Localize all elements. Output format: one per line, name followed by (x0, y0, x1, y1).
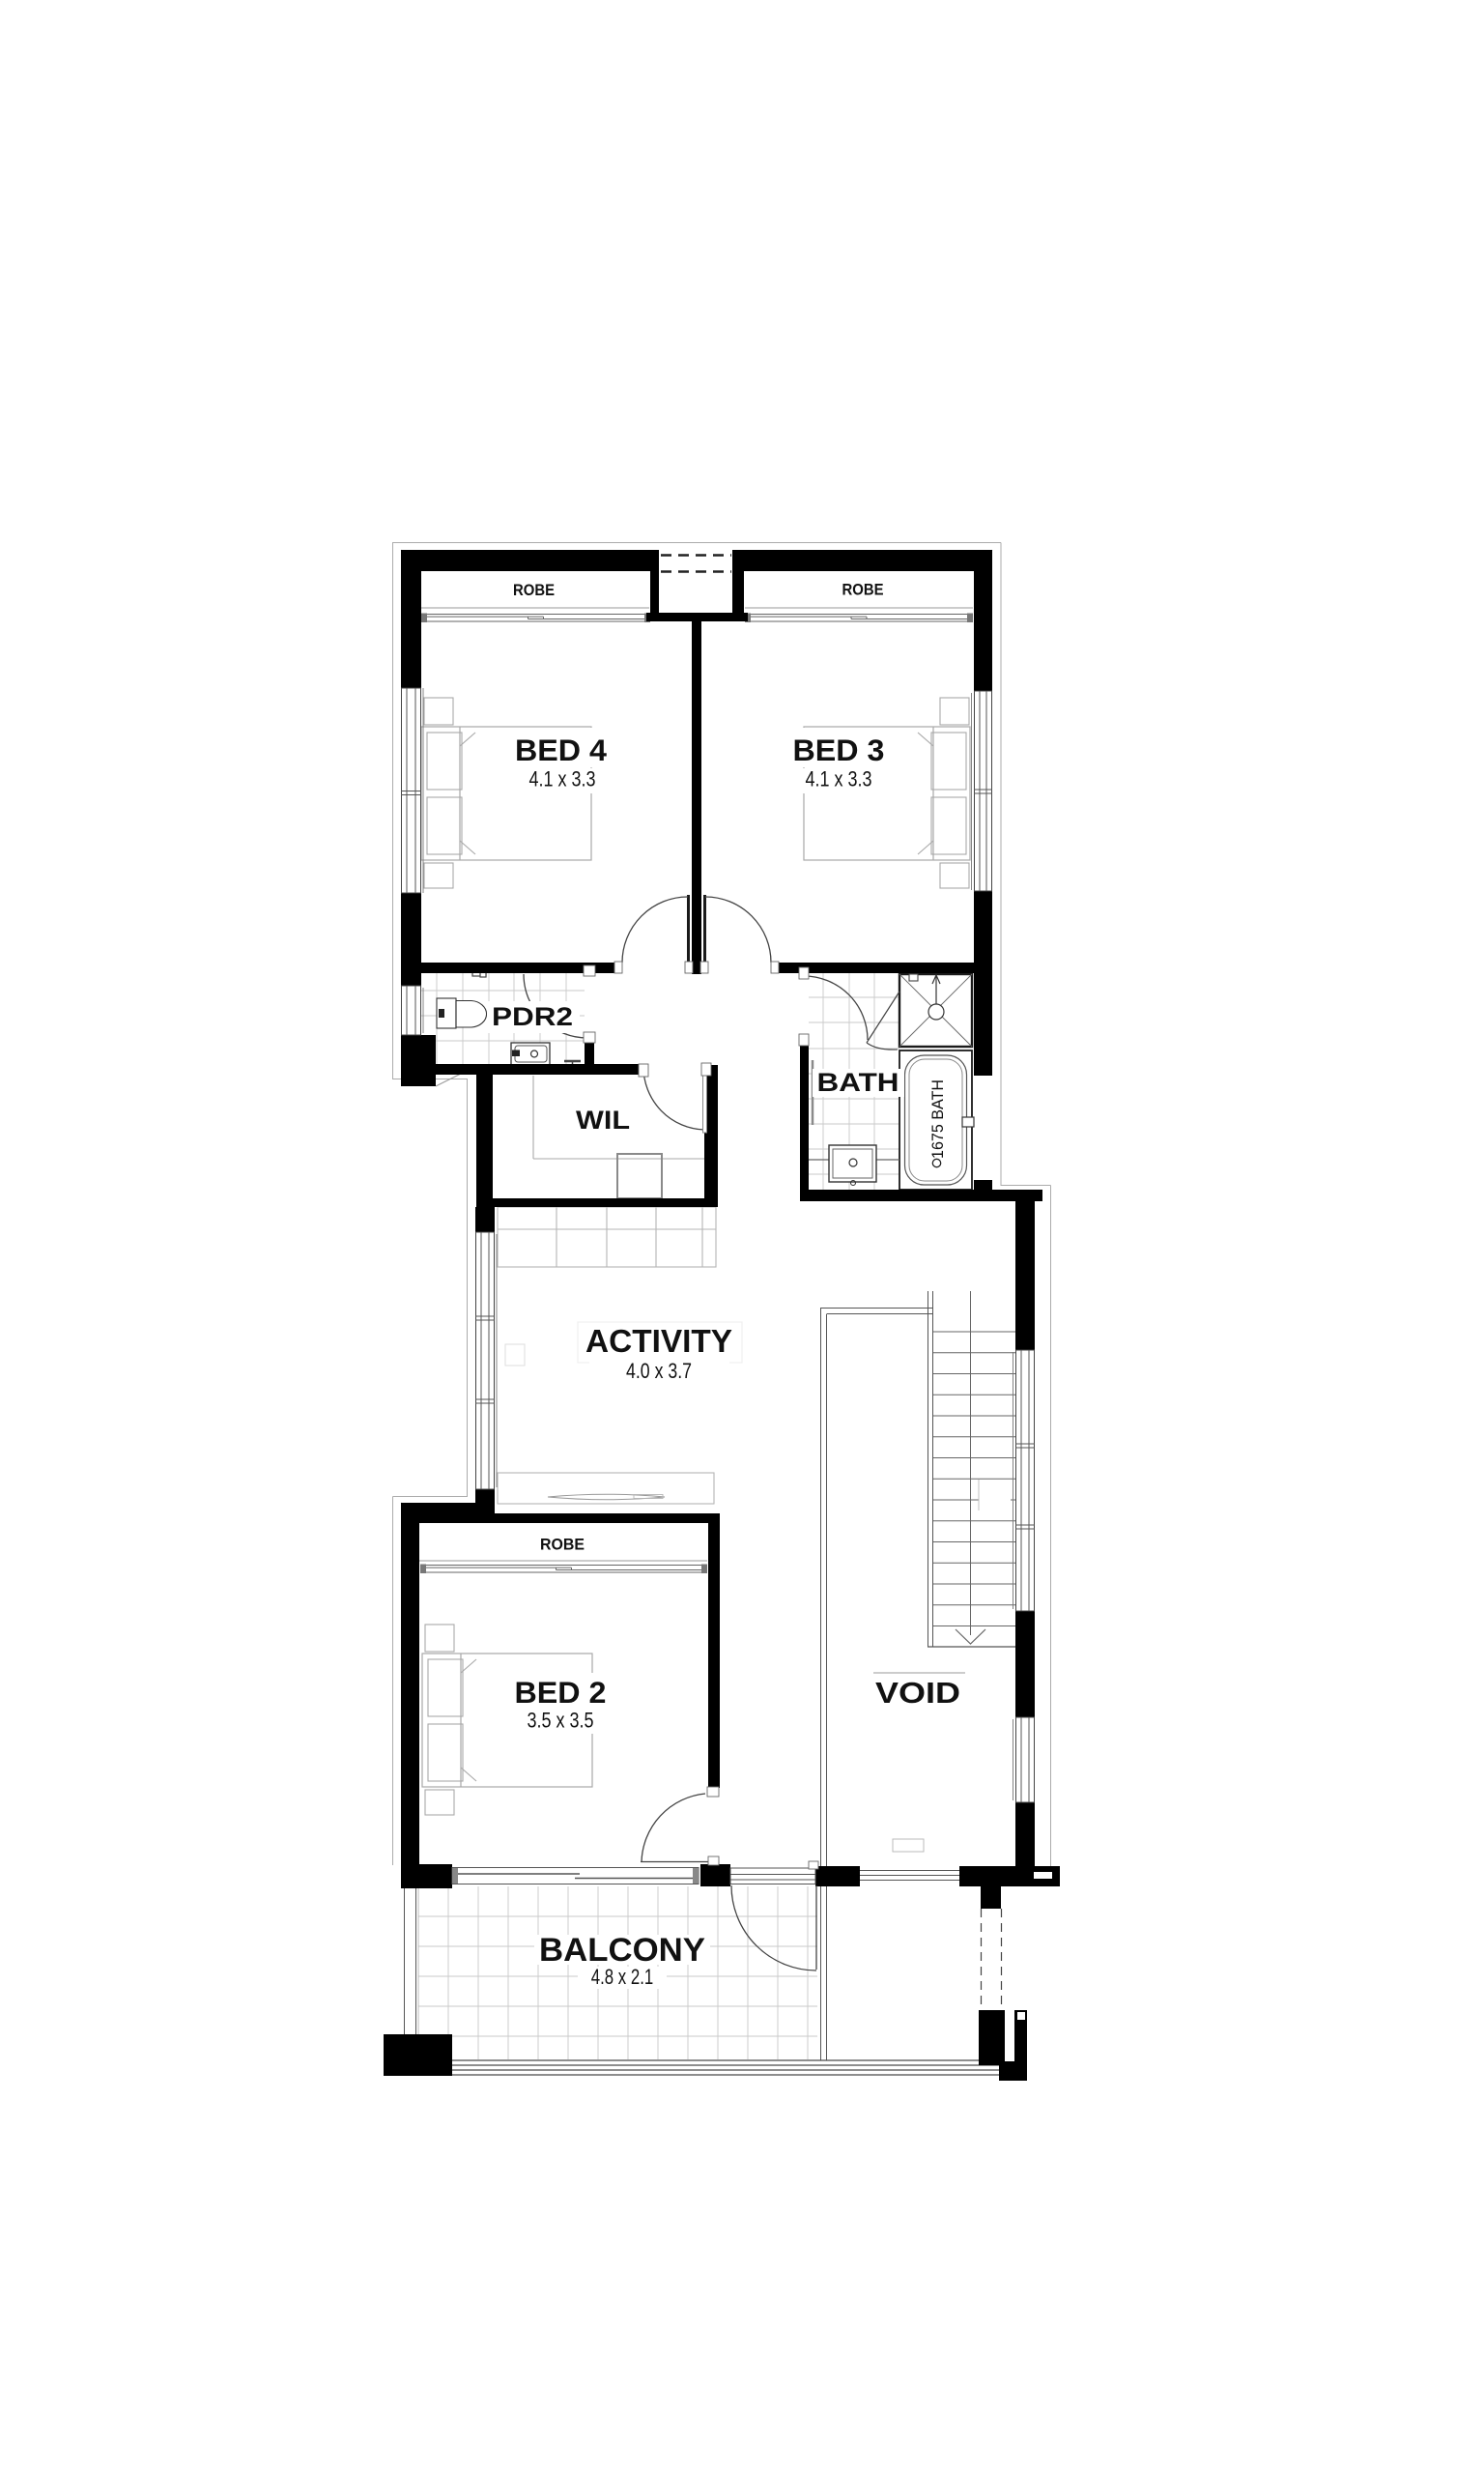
svg-text:BALCONY: BALCONY (539, 1932, 705, 1969)
svg-text:4.1 x 3.3: 4.1 x 3.3 (529, 767, 596, 791)
svg-text:3.5 x 3.5: 3.5 x 3.5 (528, 1709, 594, 1733)
svg-text:4.1 x 3.3: 4.1 x 3.3 (806, 767, 872, 791)
svg-text:ROBE: ROBE (513, 581, 555, 599)
svg-text:ACTIVITY: ACTIVITY (585, 1323, 732, 1359)
svg-text:WIL: WIL (576, 1106, 630, 1135)
svg-text:BED 2: BED 2 (515, 1675, 607, 1710)
svg-text:1675 BATH: 1675 BATH (928, 1079, 947, 1159)
svg-text:VOID: VOID (875, 1677, 960, 1710)
svg-text:BED 3: BED 3 (793, 733, 885, 767)
svg-text:ROBE: ROBE (842, 581, 884, 599)
svg-text:ROBE: ROBE (540, 1536, 585, 1554)
svg-text:BED 4: BED 4 (515, 733, 607, 767)
svg-text:4.8 x 2.1: 4.8 x 2.1 (591, 1965, 654, 1989)
svg-text:4.0 x 3.7: 4.0 x 3.7 (626, 1359, 692, 1383)
svg-text:PDR2: PDR2 (492, 1002, 573, 1031)
svg-text:BATH: BATH (817, 1068, 899, 1097)
